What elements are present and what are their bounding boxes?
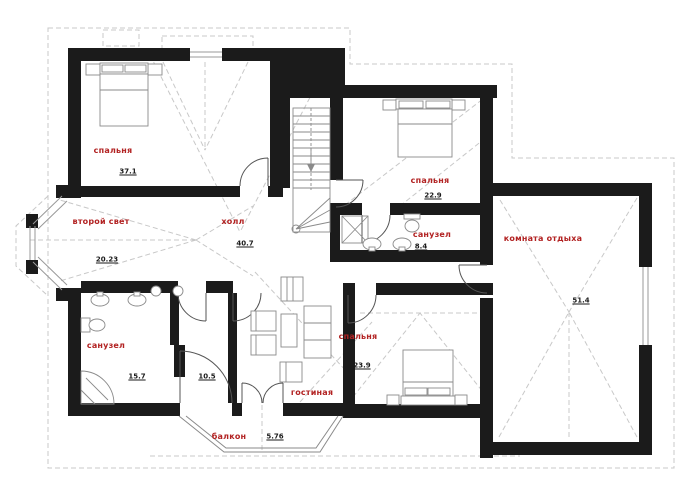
sofa-icon — [304, 306, 331, 358]
balcony-railing — [179, 416, 343, 452]
room-label-second-light: второй свет — [73, 218, 130, 226]
sink-icon — [128, 292, 146, 306]
room-area-bathroom-left: 15.7 — [128, 374, 145, 381]
sink-icon — [363, 238, 381, 251]
room-area-bedroom-bottom: 23.9 — [353, 363, 370, 370]
tv-cabinet-icon — [281, 277, 303, 301]
bed-icon — [86, 63, 162, 126]
armchair-icon — [251, 311, 276, 331]
room-label-bathroom-middle: санузел — [413, 231, 451, 239]
shower-icon — [342, 216, 368, 243]
room-label-bedroom-topright: спальня — [411, 177, 450, 185]
sink-icon — [91, 292, 109, 306]
coffee-table-icon — [281, 314, 297, 347]
shower-icon — [81, 371, 114, 404]
room-area-balcony: 5.76 — [266, 434, 283, 441]
toilet-icon — [81, 318, 105, 332]
door-bedroom-topleft — [240, 158, 268, 186]
sink-icon — [393, 238, 411, 251]
room-label-hall: холл — [221, 218, 244, 226]
room-area-bedroom-topright: 22.9 — [424, 193, 441, 200]
bed-icon — [383, 99, 465, 157]
room-area-second-light: 20.23 — [96, 257, 118, 264]
window-lounge-right — [639, 267, 652, 345]
room-label-living: гостиная — [291, 389, 333, 397]
door-storage — [178, 293, 206, 321]
room-area-bathroom-middle: 8.4 — [415, 244, 427, 251]
room-area-lounge: 51.4 — [572, 298, 589, 305]
room-area-storage: 10.5 — [198, 374, 215, 381]
room-label-lounge: комната отдыха — [504, 235, 582, 243]
cabinet-icon — [280, 362, 302, 382]
room-label-balcony: балкон — [212, 433, 247, 441]
room-area-bedroom-topleft: 37.1 — [119, 169, 136, 176]
room-label-bedroom-bottom: спальня — [339, 333, 378, 341]
stairs-icon — [292, 108, 330, 233]
bed-icon — [387, 350, 467, 405]
floorplan-drawing — [0, 0, 700, 490]
room-label-bedroom-topleft: спальня — [94, 147, 133, 155]
balcony-door-double — [242, 383, 283, 403]
floorplan: спальня 37.1 второй свет 20.23 холл 40.7… — [0, 0, 700, 490]
window-top-wall — [190, 48, 222, 61]
room-area-hall: 40.7 — [236, 241, 253, 248]
armchair-icon — [251, 335, 276, 355]
door-bedroom-topright — [336, 180, 363, 207]
room-label-bathroom-left: санузел — [87, 342, 125, 350]
